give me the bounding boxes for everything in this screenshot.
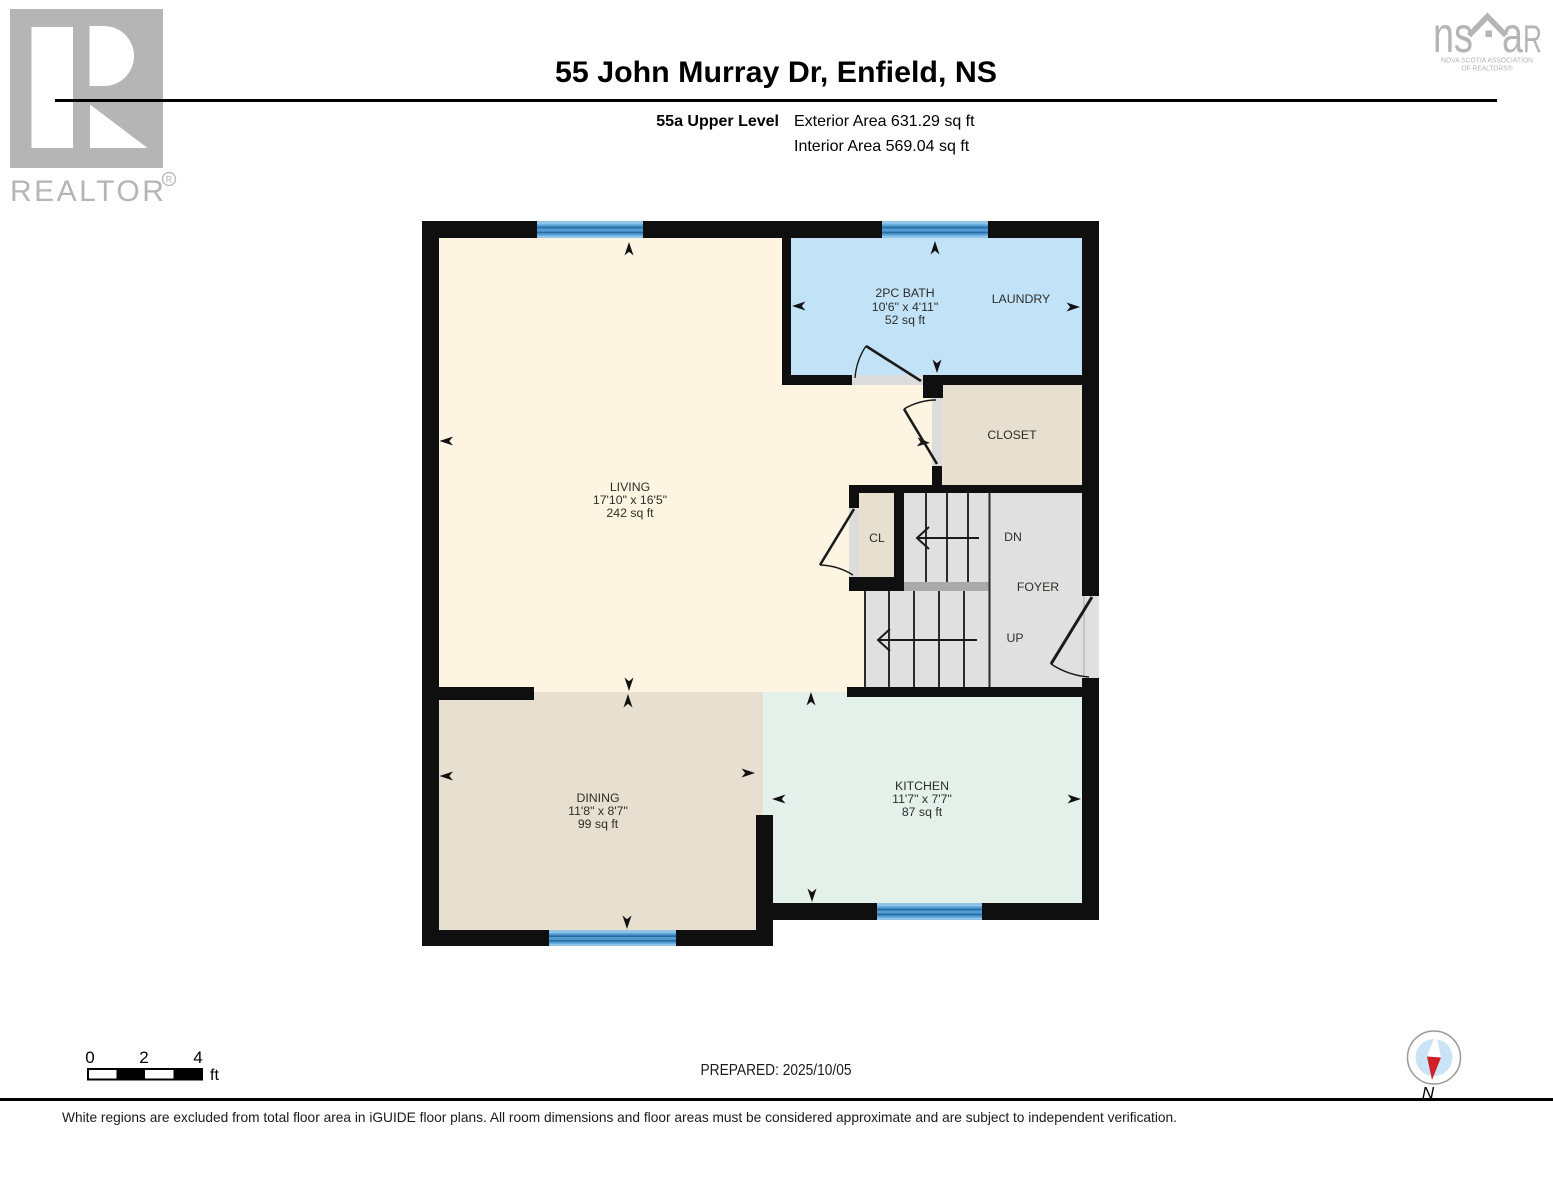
svg-text:KITCHEN: KITCHEN [895, 779, 949, 793]
svg-text:REALTOR: REALTOR [10, 175, 166, 208]
svg-text:4: 4 [193, 1048, 202, 1067]
svg-text:NOVA SCOTIA ASSOCIATION: NOVA SCOTIA ASSOCIATION [1441, 58, 1533, 65]
svg-text:10'6" x 4'11": 10'6" x 4'11" [872, 300, 939, 314]
svg-text:0: 0 [85, 1048, 94, 1067]
svg-text:ns: ns [1433, 7, 1473, 63]
svg-text:LAUNDRY: LAUNDRY [992, 292, 1051, 306]
svg-text:55 John Murray Dr, Enfield, NS: 55 John Murray Dr, Enfield, NS [555, 56, 997, 89]
svg-text:DINING: DINING [576, 791, 619, 805]
svg-text:2: 2 [139, 1048, 148, 1067]
svg-text:ft: ft [210, 1067, 219, 1084]
svg-text:DN: DN [1004, 530, 1022, 544]
svg-text:Exterior Area 631.29 sq ft: Exterior Area 631.29 sq ft [794, 113, 975, 130]
svg-text:FOYER: FOYER [1017, 580, 1059, 594]
svg-text:CLOSET: CLOSET [987, 428, 1037, 442]
svg-text:R: R [1523, 18, 1542, 61]
svg-text:242 sq ft: 242 sq ft [606, 506, 654, 520]
svg-text:LIVING: LIVING [610, 480, 650, 494]
svg-text:OF REALTORS®: OF REALTORS® [1462, 65, 1514, 73]
svg-text:Interior Area 569.04 sq ft: Interior Area 569.04 sq ft [794, 138, 970, 155]
svg-text:White regions are excluded fro: White regions are excluded from total fl… [62, 1109, 1177, 1125]
svg-text:87 sq ft: 87 sq ft [902, 805, 943, 819]
svg-text:11'8" x 8'7": 11'8" x 8'7" [568, 804, 628, 818]
svg-text:UP: UP [1006, 631, 1023, 645]
svg-text:17'10" x 16'5": 17'10" x 16'5" [593, 493, 667, 507]
svg-text:55a Upper Level: 55a Upper Level [656, 113, 779, 130]
svg-text:11'7" x 7'7": 11'7" x 7'7" [892, 792, 952, 806]
svg-text:CL: CL [869, 531, 885, 545]
svg-text:R: R [166, 175, 173, 185]
svg-text:a: a [1502, 7, 1523, 63]
svg-text:52 sq ft: 52 sq ft [885, 313, 926, 327]
svg-text:PREPARED: 2025/10/05: PREPARED: 2025/10/05 [701, 1062, 852, 1079]
svg-text:2PC BATH: 2PC BATH [875, 286, 934, 300]
svg-text:99 sq ft: 99 sq ft [578, 817, 619, 831]
